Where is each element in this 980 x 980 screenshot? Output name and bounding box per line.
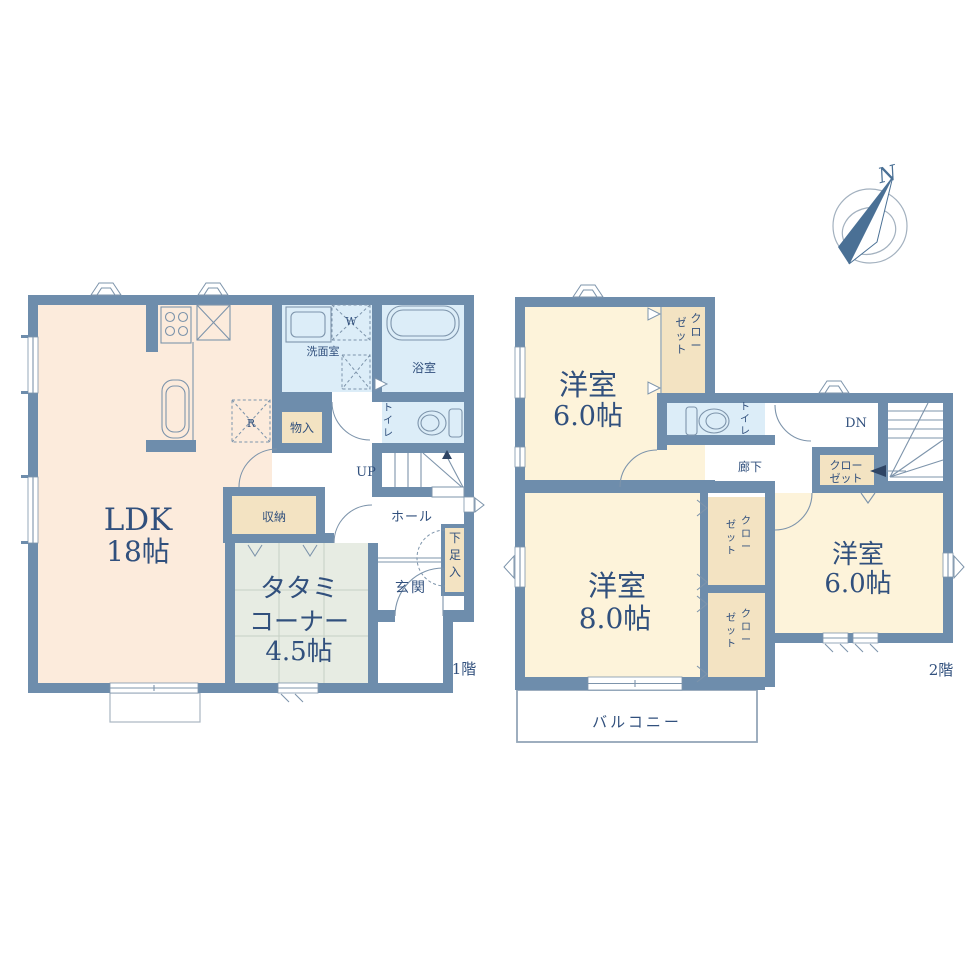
bedroom-nw-label: 洋室 xyxy=(559,368,617,402)
roof-vent-2 xyxy=(198,283,228,295)
closet-nw-label-col1: クロー xyxy=(691,312,702,352)
toilet-label-2f: トイレ xyxy=(740,402,750,437)
first-floor-plan: LDK 18帖 タタミ コーナー 4.5帖 収納 物入 洗面室 浴室 トイレ W… xyxy=(21,283,484,722)
floor2-label: 2階 xyxy=(929,661,954,679)
bath-label: 浴室 xyxy=(412,360,436,375)
second-floor-plan: 洋室 6.0帖 洋室 8.0帖 洋室 6.0帖 クロー ゼット クロー ゼット … xyxy=(504,285,964,742)
bedroom-sw-size: 8.0帖 xyxy=(579,602,652,635)
floor1-label: 1階 xyxy=(452,660,477,678)
floorplan-image: LDK 18帖 タタミ コーナー 4.5帖 収納 物入 洗面室 浴室 トイレ W… xyxy=(0,0,980,980)
terrace xyxy=(110,693,200,722)
closet-swu-label-col2: ゼット xyxy=(726,519,736,557)
ldk-size-label: 18帖 xyxy=(106,535,170,568)
ldk-label: LDK xyxy=(104,502,173,538)
roof-vent-1 xyxy=(91,283,121,295)
floorplan-page: LDK 18帖 タタミ コーナー 4.5帖 収納 物入 洗面室 浴室 トイレ W… xyxy=(0,0,980,980)
washer-label: W xyxy=(345,315,357,328)
closet-sw-lower xyxy=(708,593,765,677)
stairs-down-label: DN xyxy=(845,416,867,431)
toilet-room-2f xyxy=(667,403,765,435)
washroom-label: 洗面室 xyxy=(307,344,340,358)
roof-vent-3 xyxy=(573,285,603,297)
closet-swl-label-col2: ゼット xyxy=(726,612,736,650)
mono-ire-label: 物入 xyxy=(290,421,314,435)
stairs-up-label: UP xyxy=(356,465,376,480)
shuno-label: 収納 xyxy=(262,510,286,524)
compass-north-label: N xyxy=(875,160,900,188)
bedroom-e-size: 6.0帖 xyxy=(824,569,891,599)
bedroom-nw-size: 6.0帖 xyxy=(553,401,623,432)
toilet-label-1f: トイレ xyxy=(383,403,393,439)
corridor-label: 廊下 xyxy=(738,459,762,474)
closet-swu-label-col1: クロー xyxy=(741,515,751,553)
closet-mid-label-1: クロー xyxy=(830,459,863,472)
bathroom xyxy=(382,305,464,392)
hall-label: ホール xyxy=(391,510,433,525)
entrance-label: 玄関 xyxy=(395,579,427,596)
closet-nw-label-col2: ゼット xyxy=(676,316,687,356)
vent-marker-right-1f xyxy=(475,498,484,512)
bedroom-sw-label: 洋室 xyxy=(588,569,646,603)
balcony-label: バルコニー xyxy=(592,713,682,731)
closet-sw-upper xyxy=(708,497,765,585)
fridge-label: R xyxy=(247,417,256,430)
tatami-label-1: タタミ xyxy=(260,574,338,604)
roof-vent-4 xyxy=(819,381,849,393)
shoe-box-label: 下足入 xyxy=(449,531,461,579)
bedroom-e-label: 洋室 xyxy=(832,540,884,570)
tatami-size-label: 4.5帖 xyxy=(265,637,332,667)
closet-swl-label-col1: クロー xyxy=(741,608,751,646)
closet-mid-label-2: ゼット xyxy=(830,472,863,485)
compass-rose: N xyxy=(833,160,907,264)
tatami-label-2: コーナー xyxy=(249,607,349,636)
